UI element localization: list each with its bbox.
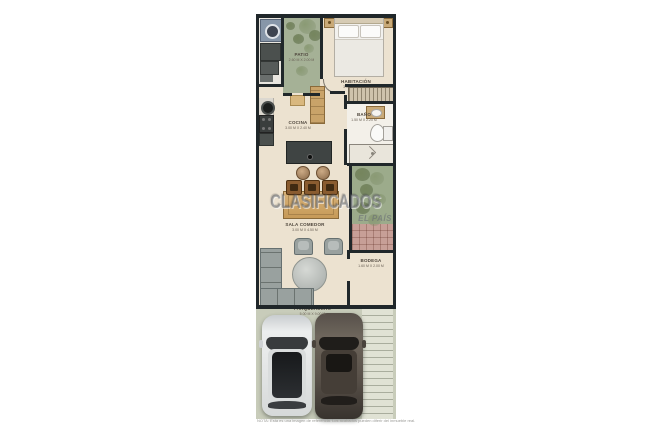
car-dark-topview (315, 313, 363, 419)
watermark-text: CLASIFICADOS (268, 192, 383, 214)
toilet-tank (383, 126, 393, 141)
room-label-cocina: COCINA3.00 M X 2.40 M (278, 120, 318, 130)
room-label-sala-comedor: SALA COMEDOR3.00 M X 4.50 M (277, 222, 333, 232)
wall (281, 17, 284, 86)
wall (344, 95, 347, 109)
car-rear-window (268, 401, 306, 409)
floorplan-image: PATIO2.60 M X 2.00 M HABITACIÓN3.00 M X … (0, 0, 648, 430)
appliance-icon (260, 43, 281, 61)
room-label-patio: PATIO2.60 M X 2.00 M (283, 52, 320, 62)
wall (256, 305, 396, 309)
kitchen-island (286, 141, 332, 164)
armchair-icon (294, 238, 313, 255)
room-label-bano: BAÑO1.50 M X 2.20 M (349, 112, 379, 122)
headboard (335, 18, 383, 24)
wall (256, 14, 259, 309)
wall (347, 250, 396, 253)
kitchen-sink-icon (261, 101, 275, 115)
stool-icon (296, 166, 310, 180)
car-mirror (259, 340, 263, 348)
car-sunroof (326, 354, 352, 372)
plant-icon (370, 172, 384, 185)
wall (347, 253, 350, 259)
car-mirror (312, 340, 316, 348)
wall (283, 93, 292, 96)
stool-icon (316, 166, 330, 180)
room-label-bodega: BODEGA1.60 M X 2.00 M (352, 258, 390, 268)
wall (259, 84, 284, 87)
watermark-brand: EL PAÍS (322, 214, 392, 223)
wall (345, 101, 393, 104)
wall (345, 84, 393, 87)
wall (347, 163, 396, 166)
pantry-cabinet (310, 86, 325, 124)
appliance-icon (260, 61, 279, 75)
stove-icon (259, 115, 274, 133)
round-rug (292, 257, 327, 292)
car-mirror (362, 340, 366, 348)
car-white-topview (262, 315, 312, 416)
bed-symbol (334, 17, 384, 77)
wall (330, 91, 345, 94)
plant-icon (296, 66, 308, 76)
tile-terrace-floor (352, 224, 393, 252)
wall (344, 129, 347, 165)
plant-icon (355, 168, 370, 181)
pillow (338, 25, 359, 38)
disclaimer-note: NOTA: Esta es una imagen de referencia. … (257, 418, 487, 423)
washing-machine-icon (260, 19, 283, 42)
armchair-icon (324, 238, 343, 255)
car-windshield (319, 337, 359, 350)
shower-symbol (349, 144, 394, 164)
wall (303, 93, 320, 96)
plant-icon (293, 34, 304, 44)
car-rear-window (321, 396, 357, 405)
walkway-stripes (362, 309, 393, 419)
duvet (335, 39, 383, 76)
wall (256, 14, 396, 18)
wall (347, 281, 350, 309)
pillow (360, 25, 381, 38)
wall (320, 17, 323, 79)
door-step-mat (290, 95, 305, 106)
plant-icon (286, 22, 295, 30)
car-sunroof (272, 352, 302, 398)
wall (393, 14, 396, 309)
kitchen-cabinet (259, 133, 274, 146)
appliance-icon (260, 75, 273, 82)
